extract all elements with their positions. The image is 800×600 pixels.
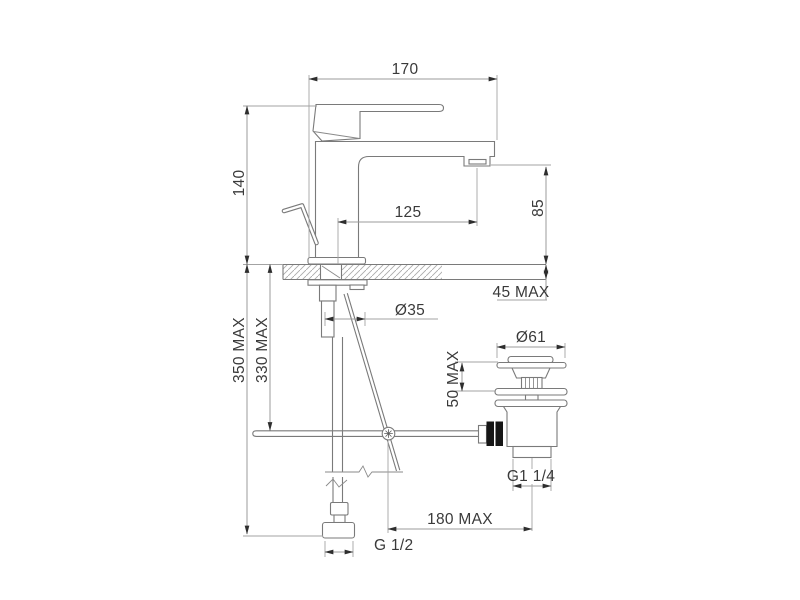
waste-upper-disc [495,389,567,396]
rod-collar [479,426,487,444]
dimension-50max-waste-clamp: 50 MAX [445,350,498,407]
dimension-o61-waste-flange: Ø61 [497,329,565,358]
dimension-label: G 1/2 [374,537,413,554]
dimension-label: 45 MAX [493,284,550,301]
clamp-washer [308,280,367,285]
waste-lower-disc [495,400,567,407]
dimension-label: 330 MAX [254,317,271,383]
waste-knurl-middle [526,395,539,400]
dimension-350max-hose-length: 350 MAX [231,265,323,537]
waste-body [504,407,561,447]
dimension-45max-deck-thickness: 45 MAX [493,265,550,301]
waste-knurled-nut [522,378,543,389]
waste-top-flange [497,363,566,369]
dimension-o35-shank-diameter: Ø35 [325,302,438,326]
dimension-label: 350 MAX [231,317,248,383]
faucet-dimension-drawing: 170 140 125 85 45 MAX [0,0,800,600]
dimensions: 170 140 125 85 45 MAX [231,61,565,557]
dimension-330max-rod-drop: 330 MAX [254,265,271,431]
rod-connector-black-left [487,422,495,447]
pop-up-waste [479,357,568,458]
dimension-g12-supply-thread: G 1/2 [325,537,413,557]
dimension-label: 180 MAX [427,511,493,528]
mounting-nut [320,285,337,301]
pop-up-lift-rod [284,206,317,244]
dimension-85-spout-height: 85 [491,165,551,264]
countertop-hatch-left [283,265,320,279]
shank-slash [322,266,340,278]
dimension-label: 140 [231,170,248,197]
dimension-140-body-height: 140 [231,106,317,265]
dimension-label: 125 [395,204,422,221]
dimension-label: 85 [530,199,547,217]
horizontal-rod [253,431,480,437]
faucet-body-and-spout [316,142,495,258]
clamp-block [350,285,364,290]
diagonal-control-rod [344,293,400,471]
extension-line [325,541,353,557]
faucet [284,105,495,265]
pipe-break-symbol [326,479,347,487]
dimension-180max-rod-reach: 180 MAX [388,441,532,533]
single-lever-handle [313,105,444,142]
dimension-label: Ø61 [516,329,546,346]
countertop-section [283,265,546,280]
dimension-label: Ø35 [395,302,425,319]
supply-pipe-upper [333,337,343,472]
rod-connector-black-right [496,422,504,447]
dimension-label: 170 [392,61,419,78]
hose-neck [334,515,345,523]
hose-end-fitting [323,523,355,539]
countertop-hatch-right [342,265,442,279]
base-flange [308,258,366,265]
waste-neck [512,368,550,378]
dimension-label: G1 1/4 [507,468,555,485]
dimension-g114-waste-thread: G1 1/4 [507,458,555,531]
dimension-label: 50 MAX [445,350,462,407]
technical-drawing-page: 170 140 125 85 45 MAX [0,0,800,600]
hose-nut [331,503,349,516]
waste-tailpiece [513,447,551,458]
break-cut-line [325,466,403,477]
